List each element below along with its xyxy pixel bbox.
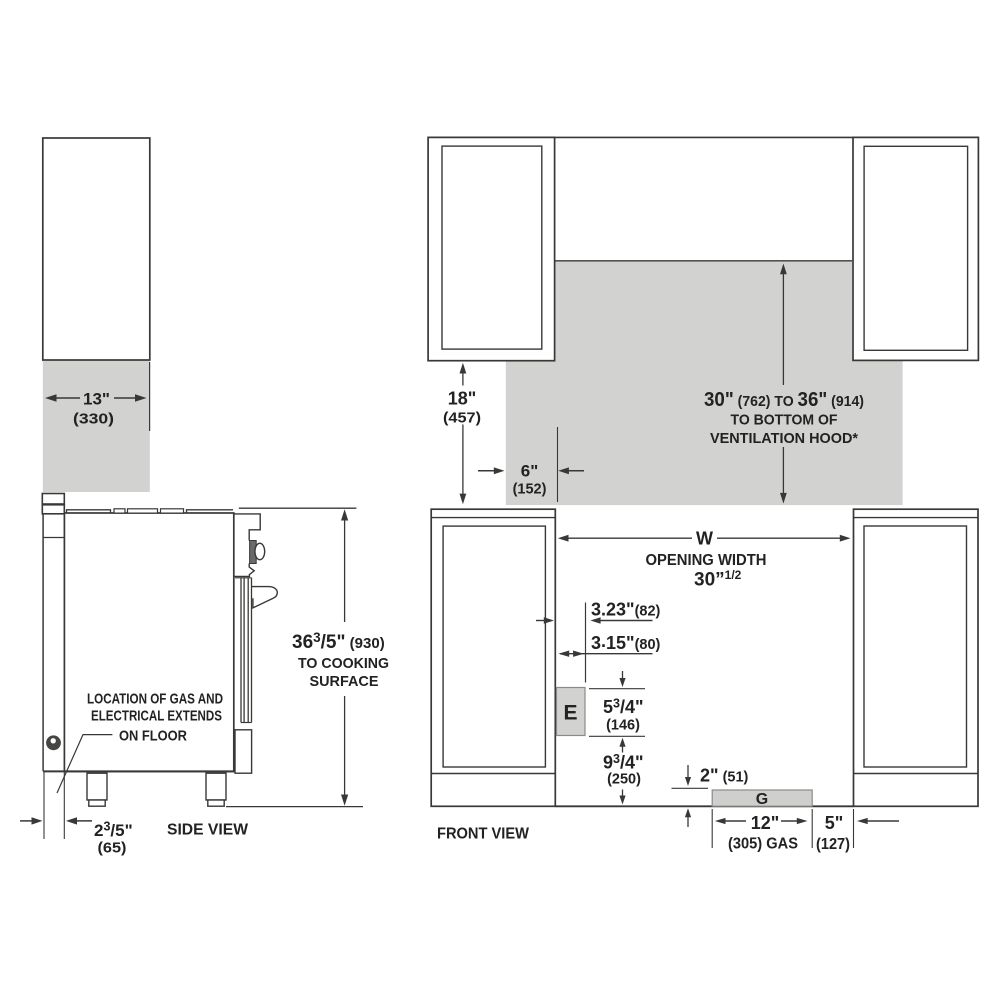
svg-text:E: E — [563, 702, 577, 725]
svg-text:53/4": 53/4" — [603, 697, 644, 718]
svg-text:(65): (65) — [98, 840, 127, 857]
svg-text:(305) GAS: (305) GAS — [728, 836, 798, 853]
svg-text:(330): (330) — [73, 411, 114, 428]
svg-text:FRONT VIEW: FRONT VIEW — [437, 826, 529, 843]
svg-text:SURFACE: SURFACE — [310, 673, 379, 690]
svg-text:TO COOKING: TO COOKING — [298, 655, 389, 672]
svg-text:18": 18" — [448, 389, 477, 409]
svg-text:2" (51): 2" (51) — [700, 766, 749, 786]
svg-text:30”1/2: 30”1/2 — [694, 568, 742, 591]
svg-text:(250): (250) — [607, 772, 641, 788]
svg-text:VENTILATION HOOD*: VENTILATION HOOD* — [710, 430, 858, 447]
svg-text:30" (762) TO 36" (914): 30" (762) TO 36" (914) — [704, 389, 864, 411]
svg-text:3.15"(80): 3.15"(80) — [591, 631, 661, 653]
svg-text:LOCATION OF GAS AND: LOCATION OF GAS AND — [87, 691, 223, 708]
svg-text:(152): (152) — [513, 482, 547, 498]
svg-text:13": 13" — [83, 390, 110, 409]
svg-text:23/5": 23/5" — [94, 820, 133, 841]
svg-text:6": 6" — [521, 462, 539, 481]
svg-text:12": 12" — [751, 813, 780, 833]
svg-text:3.23"(82): 3.23"(82) — [591, 600, 661, 620]
svg-text:(146): (146) — [606, 718, 640, 734]
svg-text:(127): (127) — [816, 836, 850, 853]
svg-text:SIDE VIEW: SIDE VIEW — [167, 822, 248, 839]
svg-text:(457): (457) — [443, 410, 481, 427]
svg-text:5": 5" — [825, 813, 844, 833]
svg-text:363/5" (930): 363/5" (930) — [292, 630, 385, 653]
svg-text:ON FLOOR: ON FLOOR — [119, 728, 187, 745]
svg-text:W: W — [696, 529, 713, 549]
svg-text:TO BOTTOM OF: TO BOTTOM OF — [731, 412, 838, 429]
svg-text:93/4": 93/4" — [603, 752, 644, 773]
svg-text:OPENING WIDTH: OPENING WIDTH — [646, 552, 767, 569]
svg-text:G: G — [756, 791, 768, 808]
svg-text:ELECTRICAL EXTENDS: ELECTRICAL EXTENDS — [91, 708, 222, 725]
